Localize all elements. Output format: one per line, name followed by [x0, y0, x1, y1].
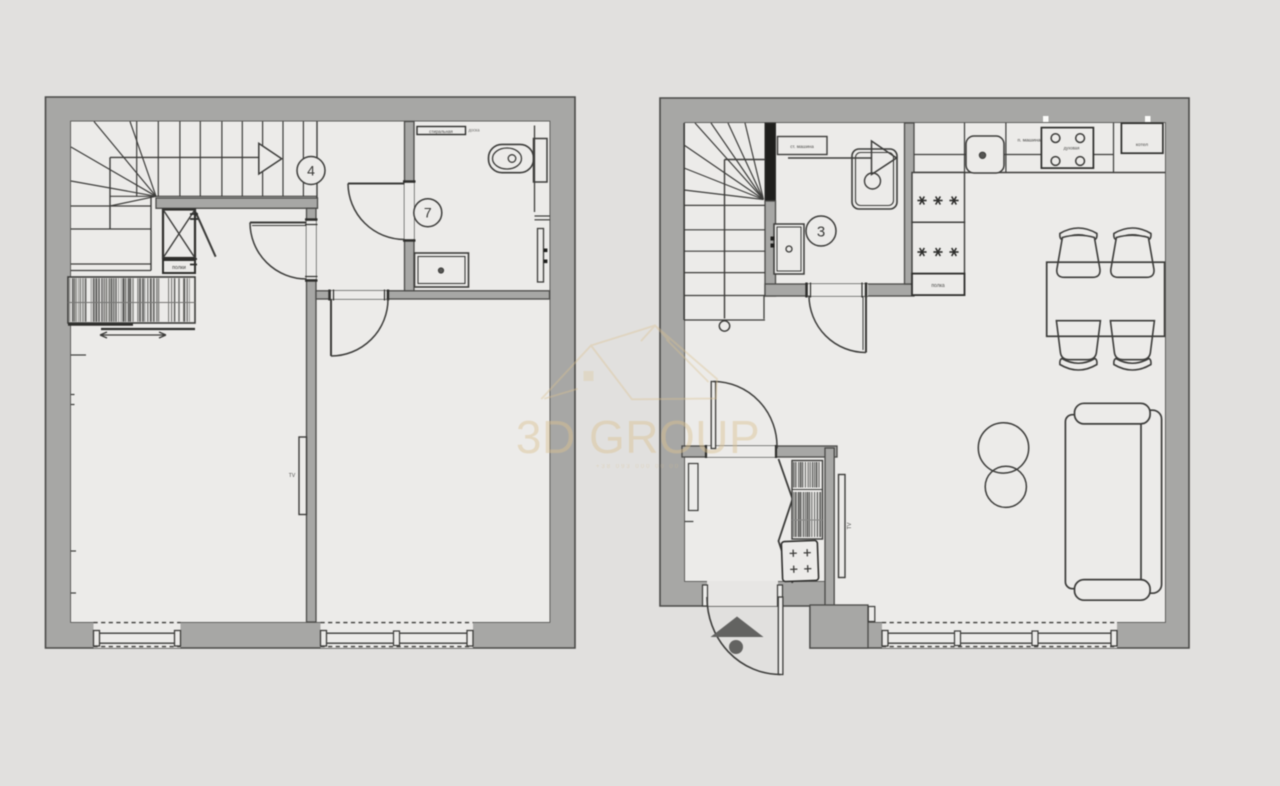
svg-text:п. машина: п. машина — [1017, 139, 1040, 144]
svg-text:4: 4 — [307, 163, 315, 179]
svg-text:полка: полка — [931, 283, 945, 289]
svg-text:3: 3 — [817, 224, 825, 241]
svg-text:котел: котел — [1136, 143, 1148, 148]
svg-text:доска: доска — [468, 128, 480, 133]
svg-text:духовая: духовая — [1064, 146, 1080, 151]
svg-text:TV: TV — [847, 522, 853, 529]
svg-text:TV: TV — [289, 473, 296, 479]
svg-text:+38 093 000 00 00: +38 093 000 00 00 — [596, 464, 680, 470]
svg-text:ст. машина: ст. машина — [790, 144, 814, 149]
svg-text:стиральная: стиральная — [429, 129, 453, 134]
svg-text:3D GROUP: 3D GROUP — [516, 411, 760, 463]
svg-text:7: 7 — [424, 205, 432, 221]
svg-text:полки: полки — [172, 265, 186, 271]
